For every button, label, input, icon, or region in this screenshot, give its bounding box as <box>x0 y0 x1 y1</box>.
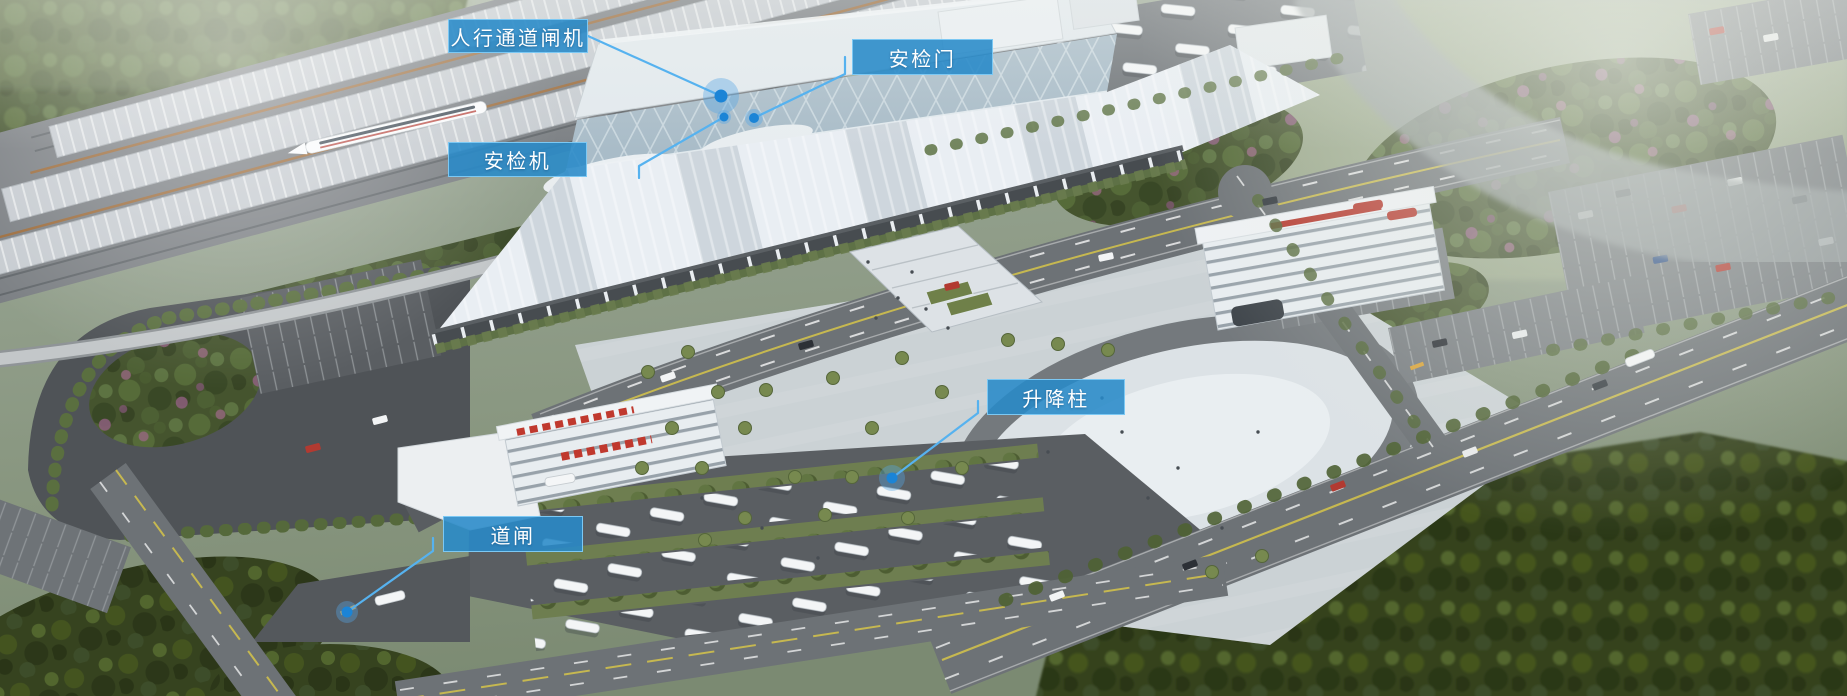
anchor-dot-security-door <box>749 113 759 123</box>
anchor-dot-road-barrier-gate <box>342 607 353 618</box>
label-road-barrier-gate: 道闸 <box>443 516 583 552</box>
label-lifting-bollard: 升降柱 <box>987 379 1125 415</box>
anchor-dot-security-scanner <box>720 113 729 122</box>
haze-top <box>0 0 1847 696</box>
scene-rendering <box>0 0 1847 696</box>
label-security-scanner: 安检机 <box>448 142 587 177</box>
anchor-dot-pedestrian-channel-gate <box>715 90 728 103</box>
anchor-dot-lifting-bollard <box>887 473 898 484</box>
label-pedestrian-channel-gate: 人行通道闸机 <box>448 19 588 53</box>
label-security-door: 安检门 <box>852 39 993 75</box>
station-aerial-rendering: 人行通道闸机 安检门 安检机 升降柱 道闸 <box>0 0 1847 696</box>
